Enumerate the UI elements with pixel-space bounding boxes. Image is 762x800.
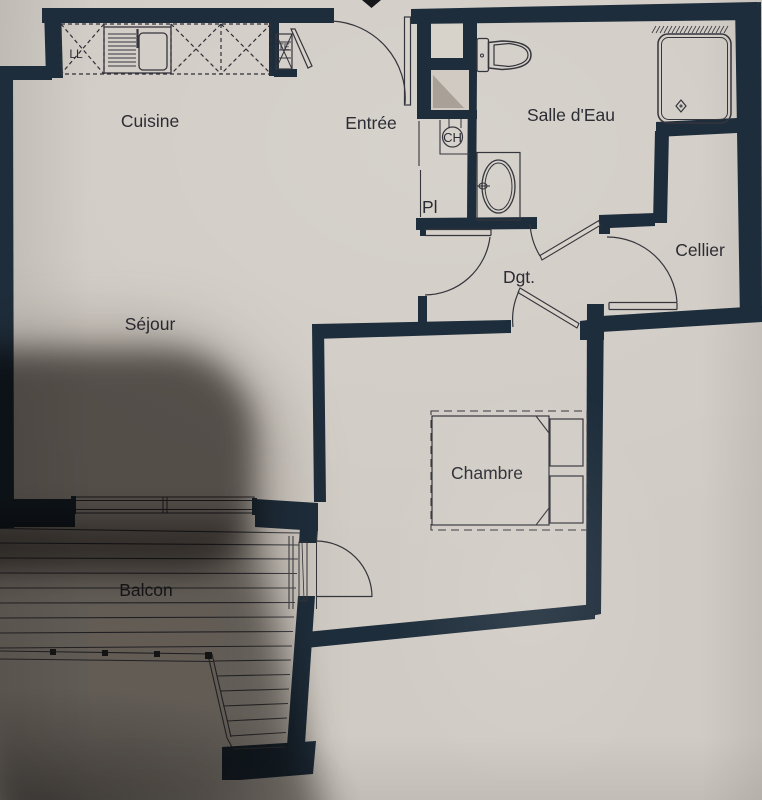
svg-text:CH: CH [443, 130, 462, 145]
svg-text:Pl: Pl [422, 197, 438, 217]
svg-text:Séjour: Séjour [125, 314, 176, 334]
svg-text:Cellier: Cellier [675, 240, 725, 260]
svg-text:Cuisine: Cuisine [121, 111, 179, 131]
svg-text:TE: TE [278, 42, 290, 52]
svg-text:Entrée: Entrée [345, 113, 397, 133]
svg-text:Dgt.: Dgt. [503, 267, 535, 287]
svg-text:Balcon: Balcon [119, 580, 173, 600]
svg-text:Salle d'Eau: Salle d'Eau [527, 105, 615, 125]
svg-text:Chambre: Chambre [451, 463, 523, 483]
svg-text:LL: LL [69, 47, 83, 61]
